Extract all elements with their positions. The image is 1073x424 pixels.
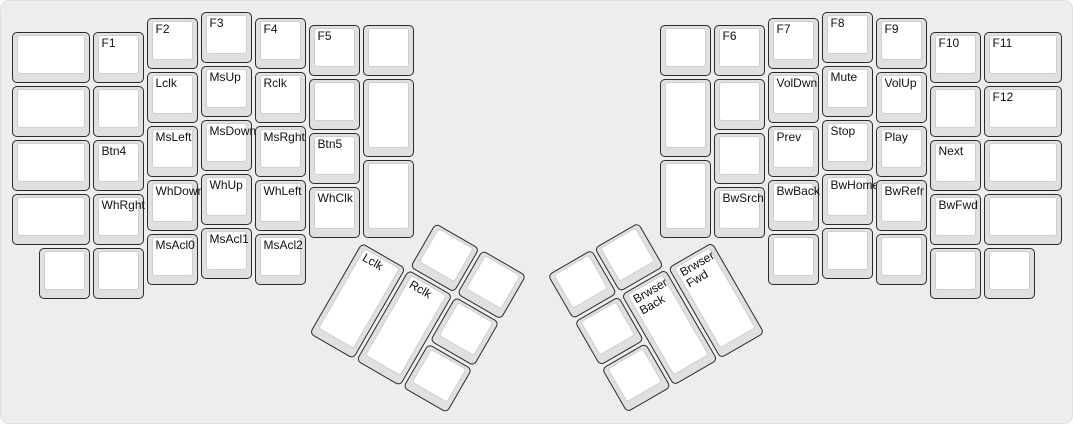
key-blank[interactable] xyxy=(12,194,90,245)
keycap-face: MsUp xyxy=(206,69,247,108)
keycap-label: WhClk xyxy=(315,191,354,205)
key-f9[interactable]: F9 xyxy=(876,18,927,69)
key-blank[interactable] xyxy=(768,234,819,285)
keyboard-layout-canvas: F1Btn4WhRghtF2LclkMsLeftWhDownMsAcl0F3Ms… xyxy=(0,0,1073,424)
keycap-face xyxy=(665,82,706,148)
keycap-face: Play xyxy=(881,129,922,168)
keycap-label: BwRefr xyxy=(882,184,921,198)
key-bwsrch[interactable]: BwSrch xyxy=(714,187,765,238)
keycap-face: WhDown xyxy=(152,183,193,222)
key-blank[interactable] xyxy=(660,25,711,76)
keycap-label xyxy=(936,90,975,91)
keycap-label xyxy=(99,252,138,253)
key-blank[interactable] xyxy=(984,140,1062,191)
key-msleft[interactable]: MsLeft xyxy=(147,126,198,177)
key-btn4[interactable]: Btn4 xyxy=(93,140,144,191)
key-f1[interactable]: F1 xyxy=(93,32,144,83)
keycap-face: F3 xyxy=(206,15,247,54)
key-msdown[interactable]: MsDown xyxy=(201,120,252,171)
keycap-face xyxy=(368,28,409,67)
keycap-label: MsAcl0 xyxy=(153,238,192,252)
keycap-label: F2 xyxy=(153,22,192,36)
key-blank[interactable] xyxy=(363,25,414,76)
key-mute[interactable]: Mute xyxy=(822,66,873,117)
keycap-label: MsRght xyxy=(261,130,300,144)
key-f6[interactable]: F6 xyxy=(714,25,765,76)
keycap-face: F8 xyxy=(827,15,868,54)
key-blank[interactable] xyxy=(363,160,414,238)
keycap-face: MsAcl2 xyxy=(260,237,301,276)
keycap-label: BwFwd xyxy=(936,198,975,212)
keycap-face: F6 xyxy=(719,28,760,67)
key-blank[interactable] xyxy=(984,248,1035,299)
keycap-label: F4 xyxy=(261,22,300,36)
key-f4[interactable]: F4 xyxy=(255,18,306,69)
keycap-face xyxy=(17,197,85,236)
key-whleft[interactable]: WhLeft xyxy=(255,180,306,231)
keycap-label xyxy=(990,144,1056,145)
keycap-label: Play xyxy=(882,130,921,144)
key-btn5[interactable]: Btn5 xyxy=(309,133,360,184)
keycap-face: Prev xyxy=(773,129,814,168)
key-volup[interactable]: VolUp xyxy=(876,72,927,123)
keycap-face: Next xyxy=(935,143,976,182)
keycap-face xyxy=(665,28,706,67)
keycap-face: Rclk xyxy=(260,75,301,114)
key-blank[interactable] xyxy=(93,248,144,299)
key-prev[interactable]: Prev xyxy=(768,126,819,177)
keycap-face xyxy=(368,82,409,148)
keycap-face xyxy=(827,231,868,270)
key-blank[interactable] xyxy=(660,160,711,238)
keycap-label: Mute xyxy=(828,70,867,84)
keycap-label xyxy=(18,90,84,91)
key-f3[interactable]: F3 xyxy=(201,12,252,63)
keycap-label: MsAcl2 xyxy=(261,238,300,252)
key-f12[interactable]: F12 xyxy=(984,86,1062,137)
key-msrght[interactable]: MsRght xyxy=(255,126,306,177)
key-blank[interactable] xyxy=(714,79,765,130)
keycap-label: F7 xyxy=(774,22,813,36)
keycap-label: F9 xyxy=(882,22,921,36)
keycap-label xyxy=(18,198,84,199)
key-bwrefr[interactable]: BwRefr xyxy=(876,180,927,231)
keycap-face xyxy=(935,89,976,128)
keycap-label: WhDown xyxy=(153,184,192,198)
key-f7[interactable]: F7 xyxy=(768,18,819,69)
keycap-label xyxy=(18,144,84,145)
keycap-label: MsLeft xyxy=(153,130,192,144)
keycap-label xyxy=(774,238,813,239)
keycap-face: BwHome xyxy=(827,177,868,216)
keycap-face: MsRght xyxy=(260,129,301,168)
keycap-face: F7 xyxy=(773,21,814,60)
keycap-label xyxy=(369,164,408,165)
keycap-face xyxy=(881,237,922,276)
keycap-face: MsLeft xyxy=(152,129,193,168)
keycap-label xyxy=(828,232,867,233)
keycap-face: WhClk xyxy=(314,190,355,229)
keycap-face: Btn5 xyxy=(314,136,355,175)
keycap-face xyxy=(368,163,409,229)
keycap-face: MsDown xyxy=(206,123,247,162)
keycap-label xyxy=(666,164,705,165)
keycap-face: F10 xyxy=(935,35,976,74)
keycap-face xyxy=(989,251,1030,290)
keycap-face: Stop xyxy=(827,123,868,162)
keycap-label: F5 xyxy=(315,29,354,43)
key-blank[interactable] xyxy=(12,86,90,137)
key-blank[interactable] xyxy=(930,248,981,299)
key-blank[interactable] xyxy=(714,133,765,184)
keycap-label: F8 xyxy=(828,16,867,30)
key-msacl0[interactable]: MsAcl0 xyxy=(147,234,198,285)
keycap-face xyxy=(935,251,976,290)
key-blank[interactable] xyxy=(12,32,90,83)
key-whclk[interactable]: WhClk xyxy=(309,187,360,238)
keycap-face xyxy=(314,82,355,121)
key-f8[interactable]: F8 xyxy=(822,12,873,63)
keycap-face: BwRefr xyxy=(881,183,922,222)
keycap-face: F5 xyxy=(314,28,355,67)
keycap-label: F12 xyxy=(990,90,1056,104)
keycap-face: VolUp xyxy=(881,75,922,114)
key-blank[interactable] xyxy=(876,234,927,285)
keycap-face: MsAcl0 xyxy=(152,237,193,276)
key-rclk[interactable]: Rclk xyxy=(255,72,306,123)
keycap-label xyxy=(369,83,408,84)
keycap-label: MsDown xyxy=(207,124,246,138)
key-blank[interactable] xyxy=(363,79,414,157)
keycap-face: WhLeft xyxy=(260,183,301,222)
keycap-face: F4 xyxy=(260,21,301,60)
keycap-label: Prev xyxy=(774,130,813,144)
keycap-label: MsAcl1 xyxy=(207,232,246,246)
keycap-label xyxy=(18,36,84,37)
key-bwhome[interactable]: BwHome xyxy=(822,174,873,225)
keycap-face xyxy=(98,89,139,128)
keycap-face: F2 xyxy=(152,21,193,60)
key-f11[interactable]: F11 xyxy=(984,32,1062,83)
keycap-label: Stop xyxy=(828,124,867,138)
key-play[interactable]: Play xyxy=(876,126,927,177)
keycap-face: VolDwn xyxy=(773,75,814,114)
keycap-face: F12 xyxy=(989,89,1057,128)
keycap-face: F11 xyxy=(989,35,1057,74)
key-next[interactable]: Next xyxy=(930,140,981,191)
keycap-label: Btn4 xyxy=(99,144,138,158)
keycap-label: F3 xyxy=(207,16,246,30)
keycap-label xyxy=(882,238,921,239)
keycap-label xyxy=(99,90,138,91)
keycap-label xyxy=(369,29,408,30)
keycap-label: WhLeft xyxy=(261,184,300,198)
key-f10[interactable]: F10 xyxy=(930,32,981,83)
keycap-label xyxy=(45,252,84,253)
keycap-face xyxy=(44,251,85,290)
keycap-label: F10 xyxy=(936,36,975,50)
keycap-label: Lclk xyxy=(153,76,192,90)
key-bwfwd[interactable]: BwFwd xyxy=(930,194,981,245)
keycap-face: WhRght xyxy=(98,197,139,236)
key-blank[interactable] xyxy=(822,228,873,279)
key-msup[interactable]: MsUp xyxy=(201,66,252,117)
keycap-face: Lclk xyxy=(152,75,193,114)
key-whup[interactable]: WhUp xyxy=(201,174,252,225)
keycap-label xyxy=(666,29,705,30)
key-msacl2[interactable]: MsAcl2 xyxy=(255,234,306,285)
key-f5[interactable]: F5 xyxy=(309,25,360,76)
key-blank[interactable] xyxy=(93,86,144,137)
key-lclk[interactable]: Lclk xyxy=(147,72,198,123)
keycap-label: MsUp xyxy=(207,70,246,84)
key-f2[interactable]: F2 xyxy=(147,18,198,69)
key-blank[interactable] xyxy=(309,79,360,130)
keycap-face xyxy=(719,82,760,121)
key-blank[interactable] xyxy=(39,248,90,299)
keycap-label xyxy=(990,198,1056,199)
keycap-label xyxy=(666,83,705,84)
keycap-face: MsAcl1 xyxy=(206,231,247,270)
keycap-label: VolUp xyxy=(882,76,921,90)
keycap-face: WhUp xyxy=(206,177,247,216)
keycap-face xyxy=(989,143,1057,182)
keycap-label xyxy=(936,252,975,253)
keycap-face xyxy=(665,163,706,229)
keycap-face xyxy=(773,237,814,276)
keycap-label: BwBack xyxy=(774,184,813,198)
keycap-label: F1 xyxy=(99,36,138,50)
keycap-face xyxy=(98,251,139,290)
keycap-face: BwBack xyxy=(773,183,814,222)
keycap-face: F1 xyxy=(98,35,139,74)
keycap-label xyxy=(990,252,1029,253)
keycap-face xyxy=(989,197,1057,236)
key-blank[interactable] xyxy=(12,140,90,191)
keycap-face: Mute xyxy=(827,69,868,108)
key-voldwn[interactable]: VolDwn xyxy=(768,72,819,123)
keycap-label: BwHome xyxy=(828,178,867,192)
keycap-label: Rclk xyxy=(261,76,300,90)
keycap-face: F9 xyxy=(881,21,922,60)
key-whdown[interactable]: WhDown xyxy=(147,180,198,231)
key-blank[interactable] xyxy=(930,86,981,137)
keycap-label: BwSrch xyxy=(720,191,759,205)
keycap-label xyxy=(720,137,759,138)
keycap-label: WhUp xyxy=(207,178,246,192)
keycap-label xyxy=(720,83,759,84)
keycap-label: WhRght xyxy=(99,198,138,212)
keycap-label: Next xyxy=(936,144,975,158)
key-bwback[interactable]: BwBack xyxy=(768,180,819,231)
keycap-face xyxy=(17,89,85,128)
keycap-label: VolDwn xyxy=(774,76,813,90)
keycap-face xyxy=(17,35,85,74)
keycap-face xyxy=(17,143,85,182)
keycap-face: BwFwd xyxy=(935,197,976,236)
keycap-label: F11 xyxy=(990,36,1056,50)
keycap-label: F6 xyxy=(720,29,759,43)
key-blank[interactable] xyxy=(984,194,1062,245)
keycap-face: BwSrch xyxy=(719,190,760,229)
key-stop[interactable]: Stop xyxy=(822,120,873,171)
keycap-label xyxy=(315,83,354,84)
key-msacl1[interactable]: MsAcl1 xyxy=(201,228,252,279)
key-blank[interactable] xyxy=(660,79,711,157)
keycap-label: Btn5 xyxy=(315,137,354,151)
keycap-face xyxy=(719,136,760,175)
key-whrght[interactable]: WhRght xyxy=(93,194,144,245)
keycap-face: Btn4 xyxy=(98,143,139,182)
